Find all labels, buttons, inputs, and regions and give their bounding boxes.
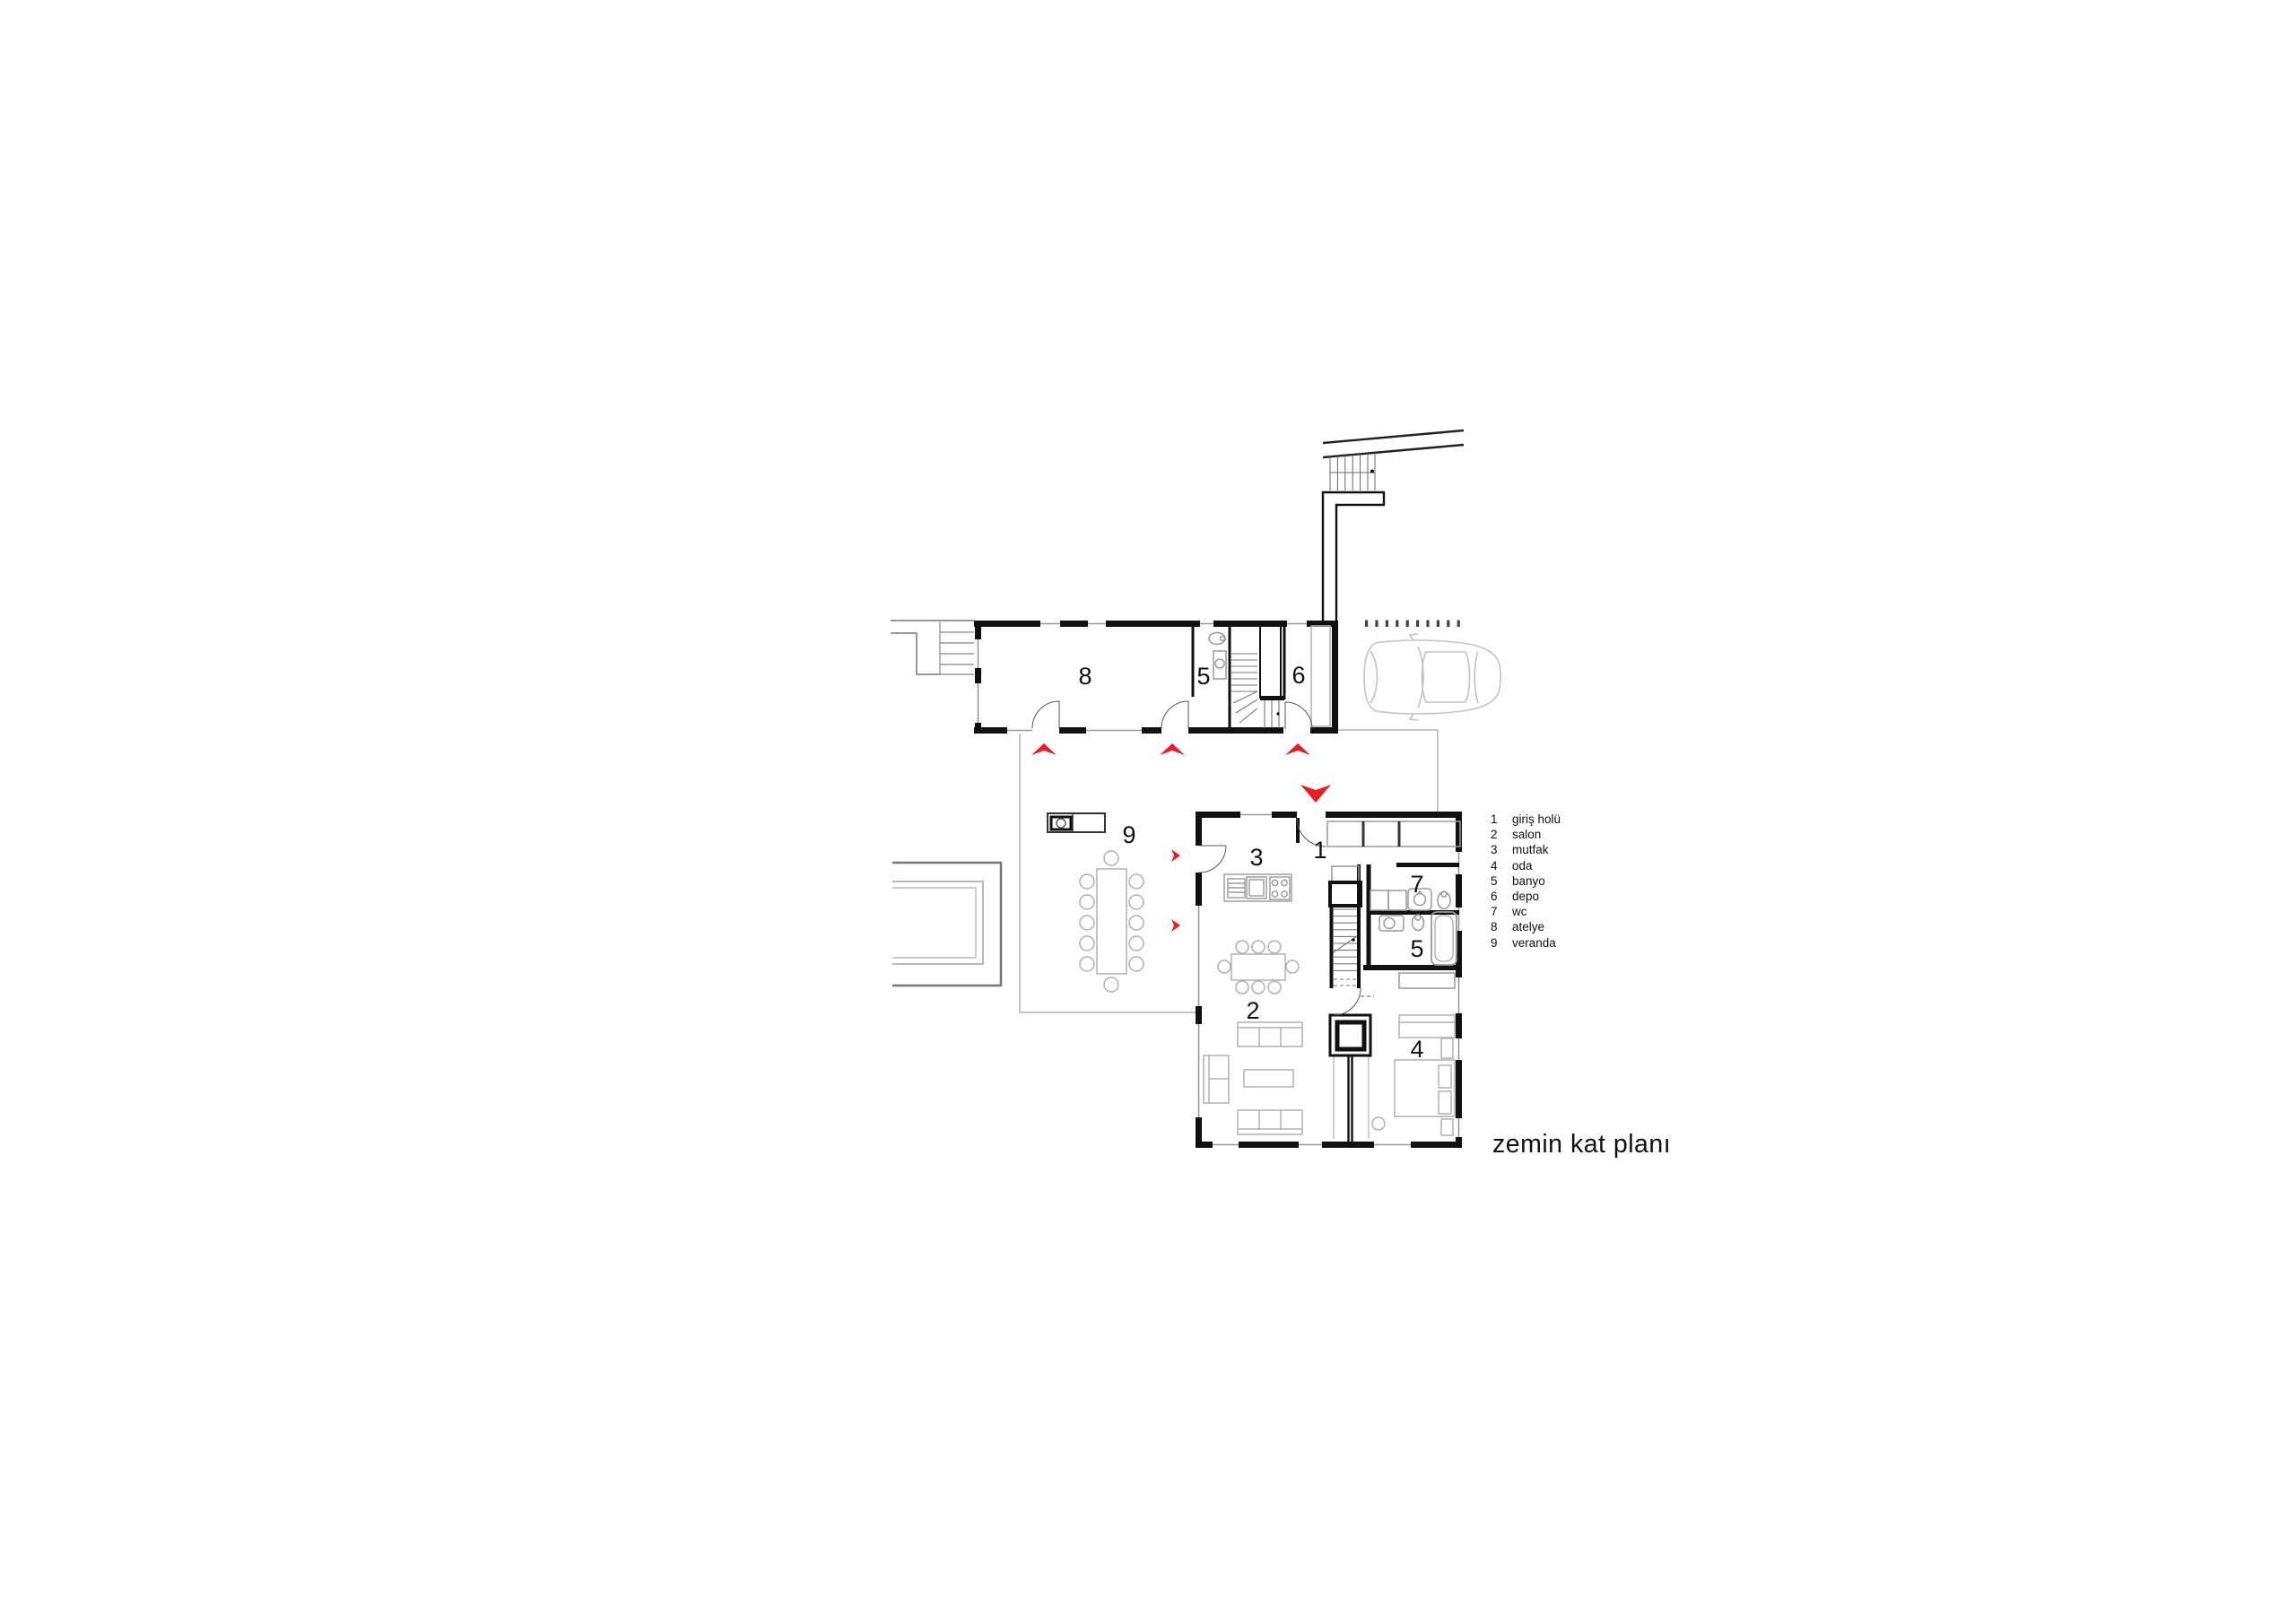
- upper-toilet-icon: [1209, 633, 1225, 645]
- legend-item: 9veranda: [1491, 935, 1561, 951]
- legend-label: salon: [1512, 827, 1541, 842]
- main-house-interior-walls: [1298, 818, 1459, 1142]
- legend-label: depo: [1512, 889, 1539, 904]
- veranda-arrow-2: [1171, 919, 1180, 932]
- room-label-banyo-upper: 5: [1196, 663, 1210, 690]
- dining-table: [1218, 941, 1299, 994]
- legend-label: wc: [1512, 904, 1527, 919]
- legend-item: 5banyo: [1491, 873, 1561, 889]
- car-top-view: [1364, 634, 1500, 720]
- room-label-banyo: 5: [1410, 935, 1423, 962]
- entrance-arrow-up-3: [1285, 743, 1310, 755]
- room-label-atelye: 8: [1078, 663, 1091, 690]
- neighbor-structure: [1323, 430, 1464, 621]
- room-label-oda: 4: [1410, 1036, 1423, 1063]
- depo-shelf: [1311, 626, 1330, 726]
- room-labels: 8 5 6 1 2 3 4 5 7 9: [1078, 662, 1423, 1063]
- fireplace: [1330, 1015, 1370, 1055]
- main-stairs: [1330, 866, 1361, 986]
- legend-number: 3: [1491, 842, 1503, 857]
- entrance-arrows: [1031, 743, 1331, 932]
- legend-item: 8atelye: [1491, 919, 1561, 934]
- legend-item: 7wc: [1491, 904, 1561, 919]
- legend-number: 9: [1491, 935, 1503, 951]
- entrance-arrow-up-1: [1031, 743, 1057, 755]
- upper-wing: [974, 621, 1338, 734]
- bedroom-furniture: [1372, 1015, 1455, 1135]
- room-label-salon: 2: [1246, 997, 1259, 1024]
- upper-stairs: [1231, 654, 1280, 728]
- legend: 1giriş holü 2salon 3mutfak 4oda 5banyo 6…: [1491, 812, 1561, 951]
- legend-label: mutfak: [1512, 842, 1549, 857]
- legend-item: 6depo: [1491, 889, 1561, 904]
- room-label-veranda: 9: [1122, 821, 1135, 848]
- legend-number: 5: [1491, 873, 1503, 889]
- legend-label: giriş holü: [1512, 812, 1561, 827]
- room-label-depo: 6: [1291, 662, 1305, 689]
- exterior-steps-hatch: [1330, 453, 1375, 491]
- kitchen-counter: [1224, 874, 1291, 901]
- legend-number: 7: [1491, 904, 1503, 919]
- entry-closet-band: [1327, 821, 1460, 847]
- legend-number: 2: [1491, 827, 1503, 842]
- room-label-giris-holu: 1: [1313, 837, 1326, 864]
- legend-number: 1: [1491, 812, 1503, 827]
- veranda-arrow-1: [1171, 849, 1180, 862]
- legend-label: atelye: [1512, 919, 1544, 934]
- legend-number: 6: [1491, 889, 1503, 904]
- pool: [892, 863, 1001, 986]
- legend-number: 8: [1491, 919, 1503, 934]
- bbq-counter: [1048, 813, 1105, 832]
- legend-label: oda: [1512, 858, 1533, 873]
- upper-wing-windows: [978, 624, 1308, 731]
- main-entrance-arrow: [1300, 785, 1331, 803]
- plan-title: zemin kat planı: [1492, 1130, 1671, 1159]
- legend-item: 3mutfak: [1491, 842, 1561, 857]
- floor-plan-drawing: 8 5 6 1 2 3 4 5 7 9: [0, 0, 2296, 1624]
- closet: [1260, 626, 1281, 698]
- veranda-table: [1080, 851, 1144, 992]
- main-house: [1196, 812, 1462, 1148]
- upper-sink-icon: [1213, 651, 1226, 679]
- floor-plan-sheet: 8 5 6 1 2 3 4 5 7 9 1giriş holü 2salon 3…: [0, 0, 2296, 1624]
- room-label-wc: 7: [1410, 871, 1423, 898]
- parking-dashed-line: [1365, 621, 1460, 628]
- room-label-mutfak: 3: [1249, 844, 1263, 871]
- legend-item: 1giriş holü: [1491, 812, 1561, 827]
- upper-wing-doors: [1032, 701, 1312, 729]
- legend-label: veranda: [1512, 935, 1556, 951]
- legend-label: banyo: [1512, 873, 1545, 889]
- sofa-group: [1204, 1022, 1302, 1134]
- entry-steps: [891, 621, 974, 674]
- legend-item: 2salon: [1491, 827, 1561, 842]
- legend-number: 4: [1491, 858, 1503, 873]
- entrance-arrow-up-2: [1160, 743, 1185, 755]
- legend-item: 4oda: [1491, 858, 1561, 873]
